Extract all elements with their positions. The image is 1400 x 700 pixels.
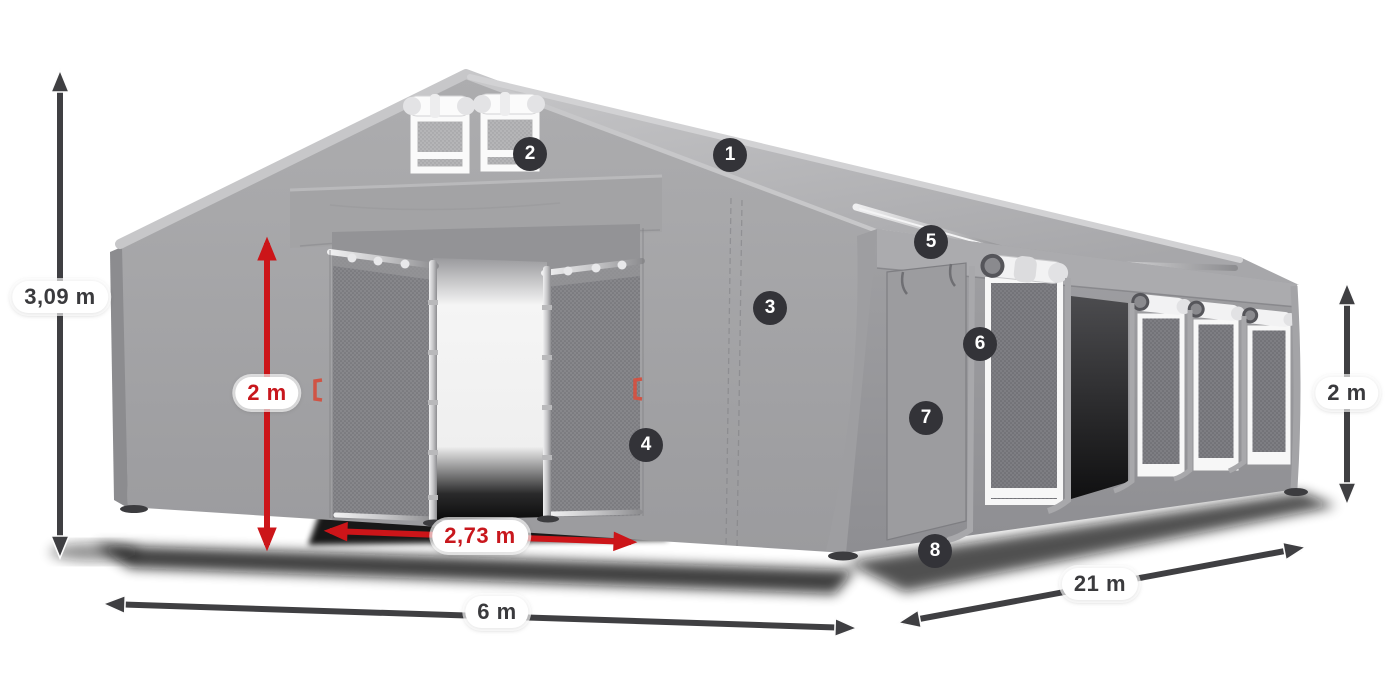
- callout-badge-6[interactable]: 6: [963, 327, 997, 361]
- product-diagram-canvas: 3,09 m2 m2,73 m6 m21 m2 m12345678: [0, 0, 1400, 700]
- gable-vent-left: [403, 94, 475, 170]
- callout-badge-2[interactable]: 2: [513, 137, 547, 171]
- tent-illustration: [0, 0, 1400, 700]
- side-window-2: [1130, 292, 1192, 474]
- callout-badge-5[interactable]: 5: [914, 225, 948, 259]
- callout-badge-8[interactable]: 8: [918, 534, 952, 568]
- dimension-label-tent-length: 21 m: [1062, 568, 1138, 600]
- dimension-label-door-width: 2,73 m: [432, 520, 528, 552]
- callout-badge-4[interactable]: 4: [629, 428, 663, 462]
- dimension-label-side-height: 2 m: [1315, 377, 1378, 409]
- front-door-opening: [330, 224, 642, 522]
- callout-badge-1[interactable]: 1: [713, 138, 747, 172]
- door-frame-pole-left: [428, 260, 438, 522]
- door-centre-gap: [433, 258, 547, 520]
- side-window-1: [979, 252, 1069, 502]
- side-window-4: [1241, 307, 1297, 462]
- dimension-label-door-height: 2 m: [235, 377, 298, 409]
- dimension-label-tent-width: 6 m: [465, 596, 528, 628]
- side-open-section: [1071, 296, 1128, 499]
- front-mesh-door-left: [330, 252, 436, 520]
- side-window-3: [1187, 300, 1246, 468]
- front-mesh-door-right: [544, 261, 642, 518]
- callout-badge-3[interactable]: 3: [753, 291, 787, 325]
- door-frame-pole-right: [542, 266, 552, 520]
- dimension-label-total-height: 3,09 m: [12, 281, 108, 313]
- callout-badge-7[interactable]: 7: [909, 401, 943, 435]
